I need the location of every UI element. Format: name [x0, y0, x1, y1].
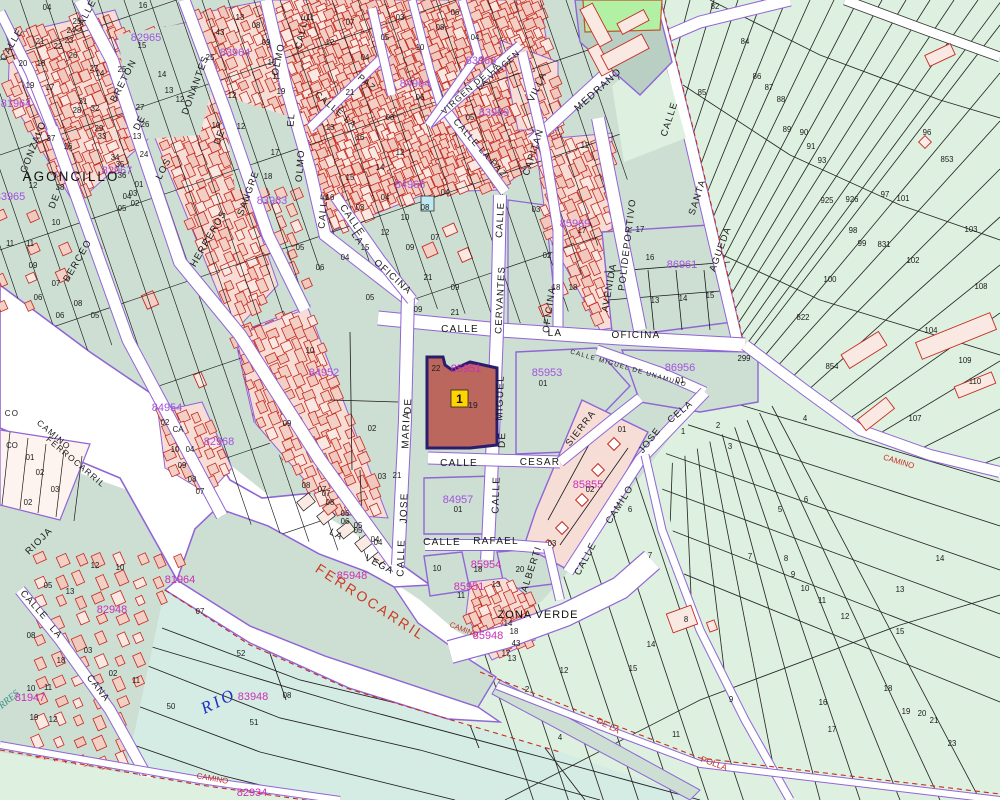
svg-text:13: 13 — [896, 585, 905, 594]
svg-text:99: 99 — [858, 239, 867, 248]
svg-text:86: 86 — [753, 72, 762, 81]
svg-text:05: 05 — [466, 113, 475, 122]
svg-text:14: 14 — [376, 163, 385, 172]
svg-text:84954: 84954 — [152, 402, 183, 414]
svg-text:25: 25 — [118, 65, 127, 74]
svg-text:04: 04 — [361, 53, 370, 62]
svg-text:89: 89 — [783, 125, 792, 134]
svg-text:04: 04 — [341, 253, 350, 262]
svg-text:85953: 85953 — [532, 367, 563, 379]
svg-text:16: 16 — [139, 1, 148, 10]
svg-text:9: 9 — [729, 695, 733, 704]
svg-text:08: 08 — [188, 475, 197, 484]
svg-text:03: 03 — [51, 485, 60, 494]
svg-text:83969: 83969 — [479, 107, 510, 119]
svg-text:18: 18 — [569, 283, 578, 292]
svg-text:11: 11 — [818, 596, 826, 605]
svg-text:06: 06 — [416, 93, 425, 102]
svg-text:15: 15 — [361, 243, 370, 252]
svg-text:9: 9 — [791, 570, 795, 579]
svg-text:1: 1 — [681, 427, 685, 436]
svg-text:84964: 84964 — [400, 78, 431, 90]
svg-text:299: 299 — [737, 354, 750, 363]
svg-text:21: 21 — [451, 308, 460, 317]
svg-text:03: 03 — [378, 472, 387, 481]
svg-text:11: 11 — [26, 239, 34, 248]
svg-text:09: 09 — [406, 243, 415, 252]
svg-text:06: 06 — [451, 8, 460, 17]
svg-text:2: 2 — [716, 421, 720, 430]
svg-text:16: 16 — [646, 253, 655, 262]
svg-text:07: 07 — [52, 279, 61, 288]
svg-text:15: 15 — [346, 173, 355, 182]
svg-text:21: 21 — [393, 471, 402, 480]
svg-text:19: 19 — [30, 713, 39, 722]
svg-text:21: 21 — [346, 88, 355, 97]
svg-text:11: 11 — [272, 72, 280, 81]
svg-text:853: 853 — [940, 155, 953, 164]
svg-text:98: 98 — [849, 226, 858, 235]
svg-text:CO: CO — [5, 409, 19, 418]
svg-text:104: 104 — [924, 326, 938, 335]
svg-text:87: 87 — [765, 83, 774, 92]
svg-text:JOSE: JOSE — [398, 492, 410, 523]
svg-text:13: 13 — [236, 13, 245, 22]
svg-text:13: 13 — [326, 123, 335, 132]
svg-text:02: 02 — [131, 199, 140, 208]
svg-text:12: 12 — [560, 666, 569, 675]
svg-text:16: 16 — [356, 133, 365, 142]
svg-text:8: 8 — [784, 554, 788, 563]
svg-text:03: 03 — [396, 13, 405, 22]
svg-text:06: 06 — [341, 509, 350, 518]
svg-text:18: 18 — [552, 283, 561, 292]
svg-text:06: 06 — [56, 311, 65, 320]
svg-text:18: 18 — [510, 627, 519, 636]
svg-text:84: 84 — [741, 37, 750, 46]
svg-text:EL: EL — [285, 112, 297, 127]
svg-text:06: 06 — [316, 263, 325, 272]
svg-text:109: 109 — [958, 356, 971, 365]
svg-text:CALLE: CALLE — [440, 458, 478, 469]
svg-text:07: 07 — [431, 233, 440, 242]
svg-text:12: 12 — [381, 228, 390, 237]
svg-text:7: 7 — [748, 552, 752, 561]
svg-text:01: 01 — [454, 505, 463, 514]
svg-text:12: 12 — [91, 561, 100, 570]
svg-text:6: 6 — [628, 505, 632, 514]
svg-text:18: 18 — [57, 656, 66, 665]
svg-text:11: 11 — [132, 676, 140, 685]
svg-text:12: 12 — [237, 122, 246, 131]
svg-text:09: 09 — [262, 38, 271, 47]
svg-text:110: 110 — [969, 377, 982, 386]
svg-text:19: 19 — [26, 81, 35, 90]
svg-text:RAFAEL: RAFAEL — [473, 536, 519, 547]
svg-text:82934: 82934 — [237, 787, 268, 799]
svg-text:82968: 82968 — [204, 436, 235, 448]
svg-text:03: 03 — [532, 205, 541, 214]
svg-text:84952: 84952 — [309, 367, 340, 379]
svg-text:OFICINA: OFICINA — [612, 330, 661, 341]
svg-text:83964: 83964 — [220, 47, 251, 59]
svg-text:08: 08 — [283, 691, 292, 700]
svg-text:14: 14 — [936, 554, 945, 563]
svg-text:81964: 81964 — [1, 98, 32, 110]
svg-text:04: 04 — [123, 192, 132, 201]
svg-text:12: 12 — [326, 38, 335, 47]
svg-text:DE: DE — [497, 432, 509, 449]
svg-text:MARIA: MARIA — [400, 411, 412, 449]
svg-text:04: 04 — [371, 535, 380, 544]
svg-text:25: 25 — [206, 53, 215, 62]
svg-text:12: 12 — [228, 91, 237, 100]
svg-text:17: 17 — [828, 725, 837, 734]
svg-text:14: 14 — [158, 70, 167, 79]
svg-text:MIGUEL: MIGUEL — [494, 375, 507, 421]
svg-text:12: 12 — [49, 715, 58, 724]
svg-text:CALLE: CALLE — [423, 537, 461, 548]
svg-text:CALLE: CALLE — [490, 476, 502, 514]
svg-text:3: 3 — [728, 442, 732, 451]
svg-text:CALLE: CALLE — [494, 202, 507, 239]
svg-text:16: 16 — [64, 142, 73, 151]
svg-text:07: 07 — [196, 487, 205, 496]
svg-text:08: 08 — [386, 113, 395, 122]
svg-text:04: 04 — [441, 188, 450, 197]
svg-text:02: 02 — [36, 468, 45, 477]
svg-text:926: 926 — [845, 195, 858, 204]
svg-text:82948: 82948 — [97, 604, 128, 616]
svg-text:03: 03 — [548, 539, 557, 548]
svg-text:08: 08 — [302, 481, 311, 490]
svg-text:05: 05 — [44, 581, 53, 590]
svg-text:04: 04 — [186, 445, 195, 454]
svg-text:86956: 86956 — [665, 362, 696, 374]
svg-text:07: 07 — [346, 18, 355, 27]
svg-text:08: 08 — [27, 631, 36, 640]
svg-text:4: 4 — [558, 733, 563, 742]
svg-text:2: 2 — [525, 685, 529, 694]
svg-text:85951: 85951 — [451, 363, 482, 375]
svg-text:10: 10 — [268, 58, 277, 67]
svg-text:822: 822 — [796, 313, 809, 322]
svg-text:10: 10 — [433, 564, 442, 573]
svg-text:23: 23 — [65, 36, 74, 45]
svg-text:07: 07 — [196, 607, 205, 616]
svg-text:43: 43 — [512, 639, 521, 648]
svg-text:CA: CA — [173, 425, 185, 434]
svg-text:01: 01 — [676, 376, 685, 385]
svg-text:108: 108 — [974, 282, 987, 291]
svg-text:14: 14 — [679, 294, 688, 303]
svg-text:17: 17 — [636, 225, 645, 234]
svg-text:83963: 83963 — [257, 195, 288, 207]
svg-text:83948: 83948 — [238, 691, 269, 703]
svg-text:11: 11 — [457, 591, 465, 600]
svg-text:19: 19 — [277, 87, 286, 96]
svg-text:90: 90 — [800, 128, 809, 137]
svg-text:26: 26 — [141, 120, 150, 129]
svg-text:07: 07 — [322, 489, 331, 498]
svg-text:18: 18 — [37, 59, 46, 68]
svg-text:06: 06 — [341, 517, 350, 526]
svg-text:1: 1 — [456, 392, 463, 406]
svg-text:04: 04 — [381, 193, 390, 202]
svg-text:11: 11 — [672, 730, 680, 739]
svg-text:88: 88 — [777, 95, 786, 104]
svg-text:32: 32 — [91, 104, 100, 113]
svg-text:81964: 81964 — [165, 574, 196, 586]
svg-text:04: 04 — [471, 33, 480, 42]
svg-text:CALLE: CALLE — [395, 539, 407, 577]
svg-text:22: 22 — [54, 42, 63, 51]
svg-text:20: 20 — [918, 709, 927, 718]
svg-text:02: 02 — [24, 498, 33, 507]
svg-text:12: 12 — [176, 95, 185, 104]
svg-text:27: 27 — [136, 103, 145, 112]
svg-text:10: 10 — [52, 218, 61, 227]
svg-text:101: 101 — [896, 194, 909, 203]
svg-text:34: 34 — [111, 153, 120, 162]
svg-text:43: 43 — [216, 28, 225, 37]
svg-text:CO: CO — [6, 441, 18, 450]
svg-text:10: 10 — [212, 121, 221, 130]
svg-text:83965: 83965 — [0, 191, 25, 203]
svg-text:93: 93 — [818, 156, 827, 165]
svg-text:CESAR: CESAR — [520, 457, 560, 468]
svg-text:24: 24 — [67, 26, 76, 35]
svg-text:01: 01 — [135, 180, 144, 189]
svg-text:925: 925 — [820, 196, 834, 205]
svg-text:24: 24 — [140, 150, 149, 159]
svg-text:31: 31 — [79, 97, 88, 106]
svg-text:15: 15 — [706, 291, 715, 300]
svg-text:08: 08 — [421, 203, 430, 212]
svg-text:13: 13 — [165, 86, 174, 95]
svg-text:02: 02 — [368, 424, 377, 433]
svg-text:10: 10 — [401, 213, 410, 222]
svg-text:16: 16 — [326, 193, 335, 202]
svg-text:103: 103 — [964, 225, 977, 234]
svg-text:7: 7 — [648, 551, 652, 560]
svg-text:86961: 86961 — [667, 259, 698, 271]
svg-text:36: 36 — [118, 171, 127, 180]
svg-text:21: 21 — [424, 273, 433, 282]
svg-text:02: 02 — [161, 418, 170, 427]
svg-text:LA: LA — [548, 328, 563, 339]
svg-text:51: 51 — [250, 718, 259, 727]
svg-text:5: 5 — [778, 505, 783, 514]
svg-text:13: 13 — [508, 654, 517, 663]
svg-text:21: 21 — [930, 716, 939, 725]
svg-text:97: 97 — [881, 190, 890, 199]
svg-text:25: 25 — [73, 17, 82, 26]
svg-text:22: 22 — [432, 364, 441, 373]
svg-text:03: 03 — [356, 203, 365, 212]
svg-text:02: 02 — [586, 485, 595, 494]
svg-text:21: 21 — [36, 37, 45, 46]
svg-text:84966: 84966 — [395, 179, 426, 191]
svg-text:08: 08 — [326, 498, 335, 507]
svg-text:18: 18 — [474, 565, 483, 574]
svg-text:04: 04 — [43, 3, 52, 12]
svg-text:50: 50 — [167, 702, 176, 711]
svg-text:05: 05 — [354, 521, 363, 530]
svg-text:8: 8 — [684, 615, 688, 624]
svg-text:17: 17 — [271, 148, 280, 157]
svg-text:10: 10 — [27, 684, 36, 693]
svg-text:11: 11 — [44, 683, 52, 692]
svg-text:18: 18 — [884, 684, 893, 693]
svg-text:20: 20 — [516, 565, 525, 574]
svg-text:05: 05 — [296, 243, 305, 252]
svg-text:831: 831 — [877, 240, 890, 249]
svg-text:06: 06 — [34, 293, 43, 302]
svg-text:13: 13 — [133, 132, 142, 141]
svg-text:52: 52 — [237, 649, 246, 658]
svg-text:12: 12 — [396, 148, 405, 157]
svg-text:09: 09 — [29, 261, 38, 270]
svg-text:03: 03 — [84, 646, 93, 655]
svg-text:11: 11 — [306, 13, 314, 22]
svg-text:37: 37 — [47, 134, 56, 143]
svg-text:26: 26 — [69, 51, 78, 60]
svg-text:82: 82 — [711, 2, 720, 11]
svg-text:15: 15 — [629, 664, 638, 673]
svg-text:96: 96 — [923, 128, 932, 137]
svg-text:28: 28 — [73, 106, 82, 115]
svg-text:05: 05 — [118, 204, 127, 213]
svg-text:4: 4 — [803, 414, 808, 423]
svg-text:6: 6 — [804, 495, 808, 504]
svg-text:02: 02 — [109, 669, 118, 678]
svg-text:14: 14 — [647, 640, 656, 649]
svg-text:91: 91 — [807, 142, 816, 151]
svg-text:854: 854 — [825, 362, 839, 371]
svg-text:09: 09 — [283, 419, 292, 428]
svg-text:CALLE: CALLE — [441, 324, 479, 335]
svg-text:102: 102 — [906, 256, 919, 265]
svg-text:17: 17 — [578, 226, 587, 235]
svg-text:33: 33 — [98, 132, 107, 141]
svg-text:13: 13 — [651, 296, 660, 305]
svg-text:17: 17 — [46, 83, 55, 92]
svg-text:12: 12 — [581, 141, 590, 150]
svg-text:23: 23 — [948, 739, 957, 748]
svg-text:18: 18 — [264, 172, 273, 181]
svg-text:05: 05 — [381, 33, 390, 42]
svg-text:08: 08 — [74, 299, 83, 308]
svg-text:20: 20 — [19, 59, 28, 68]
svg-text:38: 38 — [56, 183, 65, 192]
svg-text:85: 85 — [698, 88, 707, 97]
svg-text:10: 10 — [116, 563, 125, 572]
svg-text:15: 15 — [138, 41, 147, 50]
svg-text:12: 12 — [29, 181, 38, 190]
svg-text:10: 10 — [306, 346, 315, 355]
svg-text:10: 10 — [416, 43, 425, 52]
svg-text:05: 05 — [91, 311, 100, 320]
svg-text:12: 12 — [841, 612, 850, 621]
svg-text:09: 09 — [414, 305, 423, 314]
svg-text:08: 08 — [436, 23, 445, 32]
svg-text:01: 01 — [618, 425, 627, 434]
svg-text:10: 10 — [801, 584, 810, 593]
svg-text:05: 05 — [366, 293, 375, 302]
svg-text:08: 08 — [252, 21, 261, 30]
svg-text:19: 19 — [468, 400, 478, 410]
svg-text:02: 02 — [543, 251, 552, 260]
svg-text:107: 107 — [908, 414, 921, 423]
svg-text:13: 13 — [492, 580, 501, 589]
svg-text:19: 19 — [902, 707, 911, 716]
svg-text:01: 01 — [26, 453, 35, 462]
svg-text:15: 15 — [896, 627, 905, 636]
svg-text:14: 14 — [96, 69, 105, 78]
svg-text:16: 16 — [819, 698, 828, 707]
svg-text:01: 01 — [539, 379, 548, 388]
svg-text:100: 100 — [823, 275, 837, 284]
svg-text:11: 11 — [6, 239, 14, 248]
svg-text:10: 10 — [171, 445, 180, 454]
svg-text:09: 09 — [451, 283, 460, 292]
svg-text:13: 13 — [66, 587, 75, 596]
svg-text:09: 09 — [178, 461, 187, 470]
